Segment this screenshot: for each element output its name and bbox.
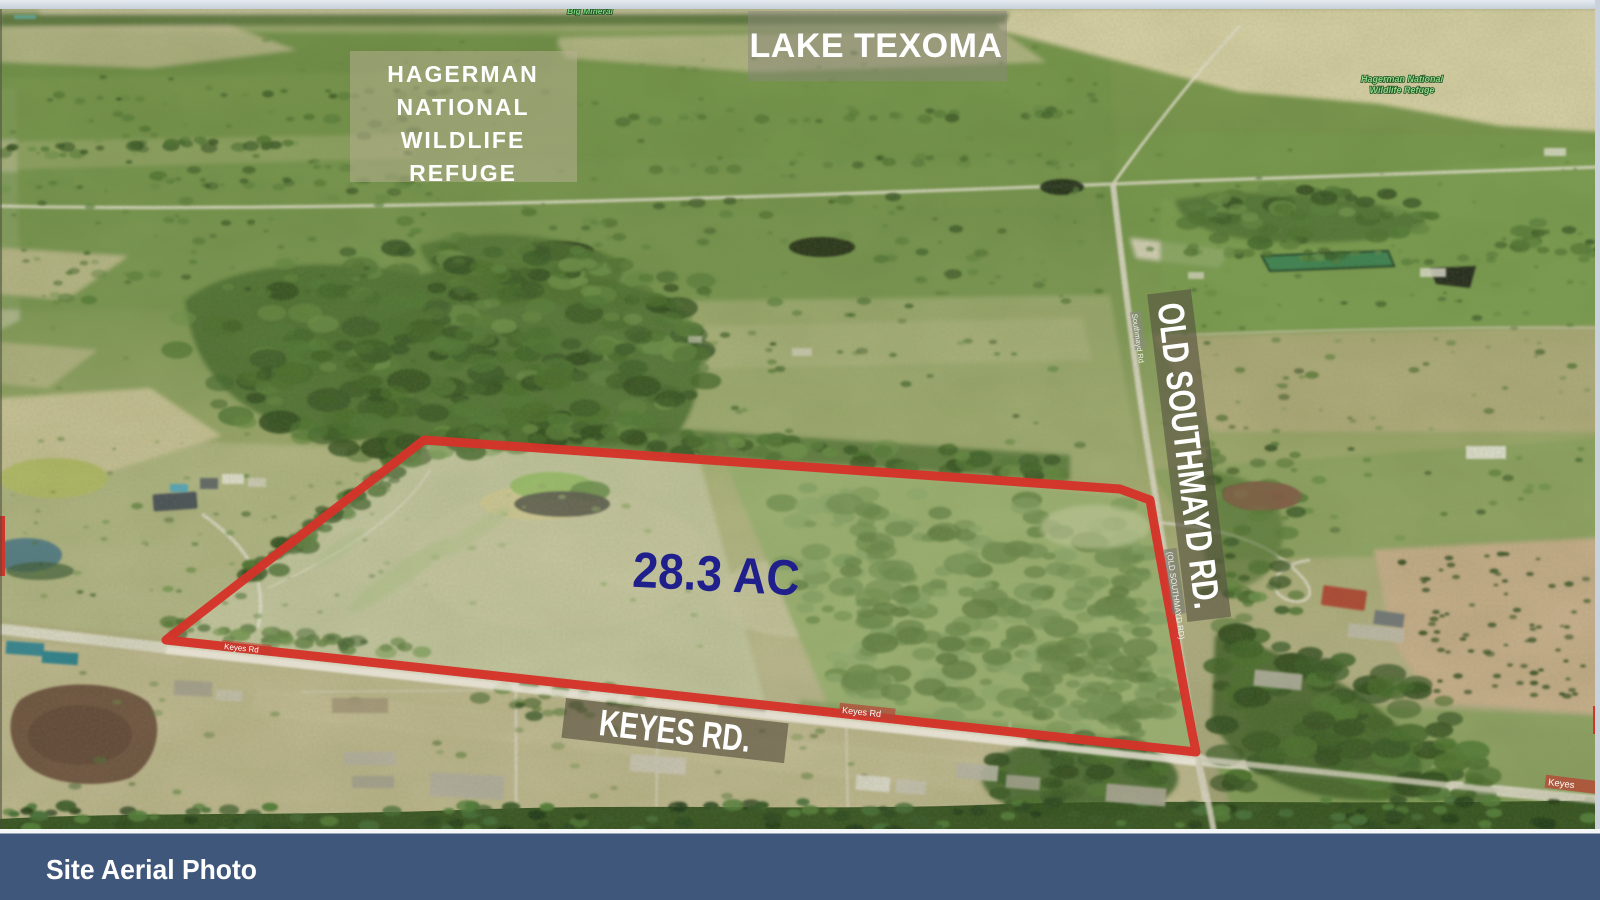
svg-text:WILDLIFE: WILDLIFE [401, 127, 526, 153]
svg-text:Hagerman National: Hagerman National [1361, 74, 1444, 84]
svg-text:NATIONAL: NATIONAL [396, 94, 529, 120]
svg-text:HAGERMAN: HAGERMAN [387, 61, 538, 87]
svg-text:REFUGE: REFUGE [409, 160, 517, 186]
svg-text:Site Aerial Photo: Site Aerial Photo [46, 854, 257, 885]
svg-text:28.3 AC: 28.3 AC [631, 542, 801, 607]
svg-text:LAKE TEXOMA: LAKE TEXOMA [750, 27, 1003, 65]
svg-text:Wildlife Refuge: Wildlife Refuge [1370, 85, 1435, 95]
